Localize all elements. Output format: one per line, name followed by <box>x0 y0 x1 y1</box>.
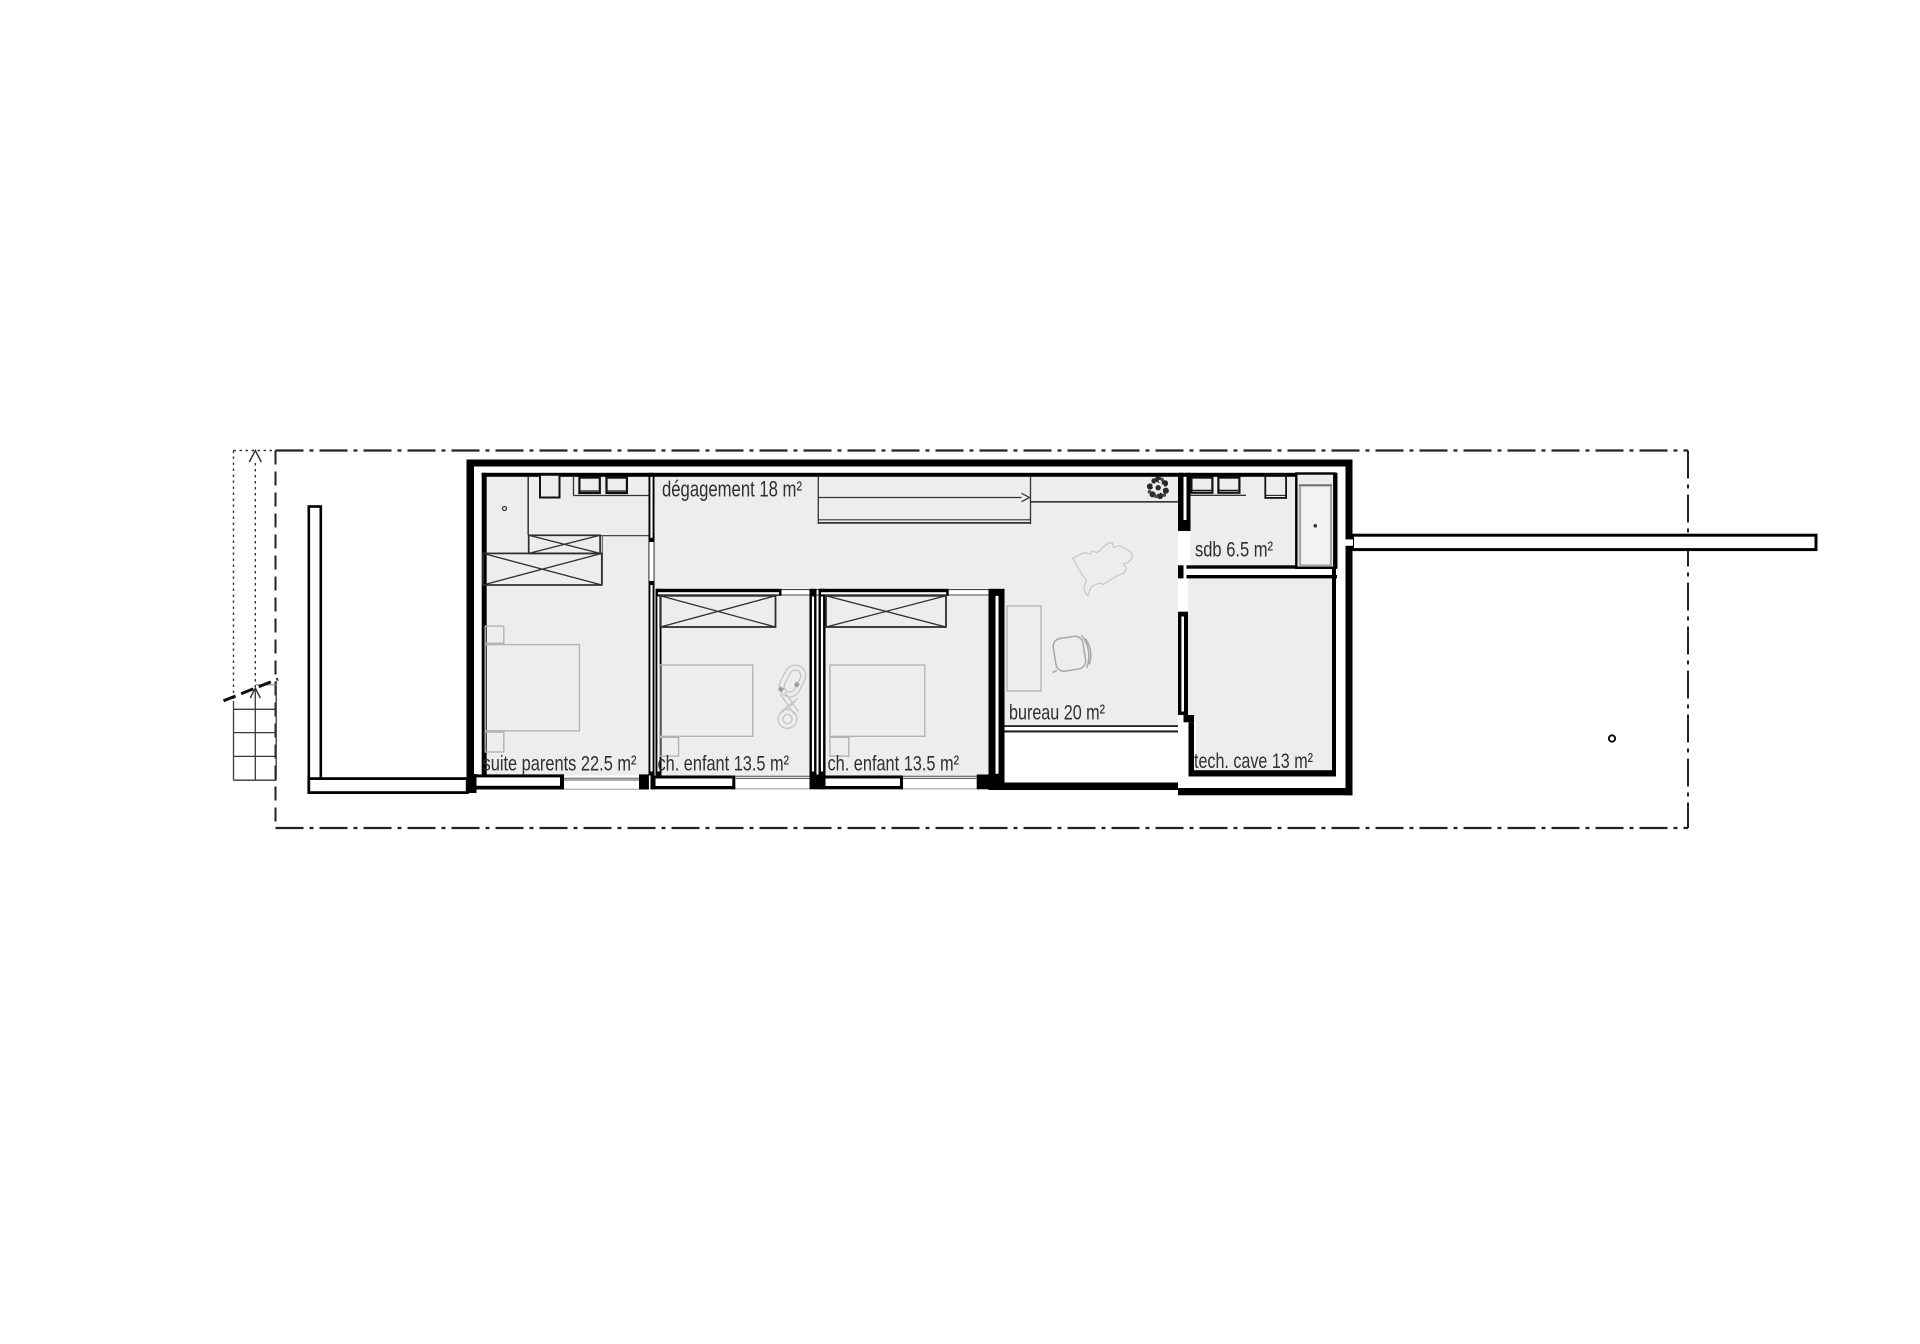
svg-text:tech. cave 13 m²: tech. cave 13 m² <box>1194 750 1313 773</box>
svg-text:ch. enfant 13.5 m²: ch. enfant 13.5 m² <box>658 753 790 776</box>
svg-text:ch. enfant 13.5 m²: ch. enfant 13.5 m² <box>828 753 960 776</box>
svg-text:dégagement 18 m²: dégagement 18 m² <box>662 477 802 502</box>
svg-text:bureau 20 m²: bureau 20 m² <box>1009 702 1105 725</box>
svg-text:suite parents 22.5 m²: suite parents 22.5 m² <box>483 753 637 776</box>
svg-text:sdb 6.5 m²: sdb 6.5 m² <box>1195 539 1273 562</box>
